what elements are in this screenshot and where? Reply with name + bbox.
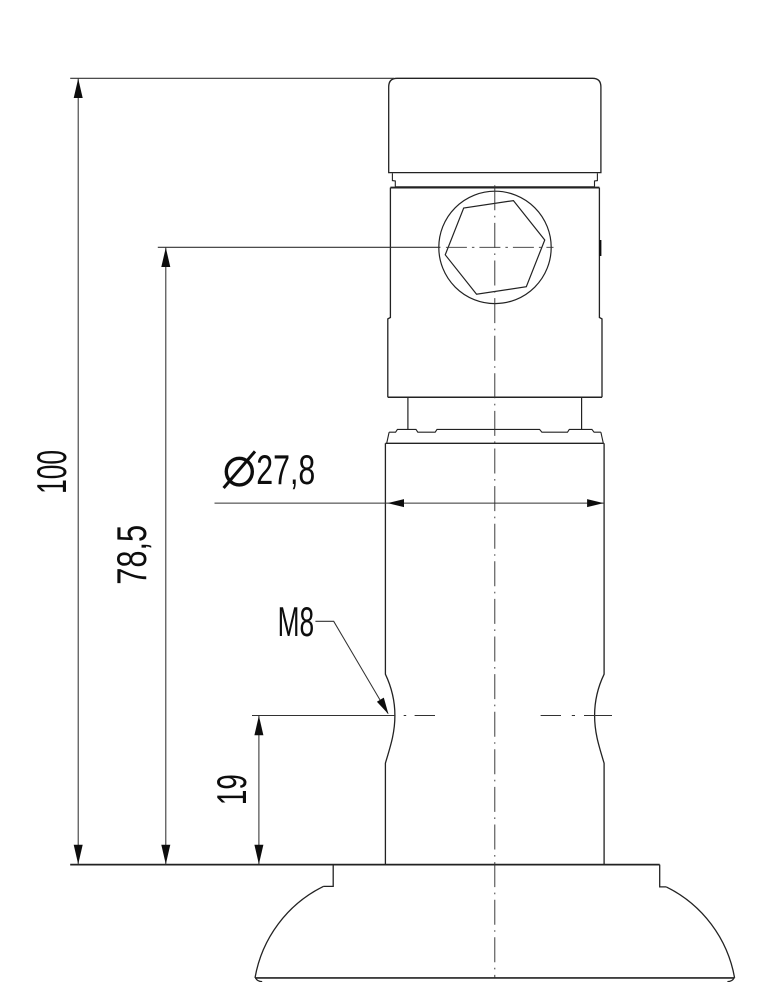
svg-text:19: 19 <box>208 774 255 805</box>
svg-text:100: 100 <box>28 450 75 494</box>
svg-text:78,5: 78,5 <box>108 525 155 585</box>
svg-text:M8: M8 <box>278 598 315 645</box>
svg-text:27,8: 27,8 <box>256 446 315 493</box>
